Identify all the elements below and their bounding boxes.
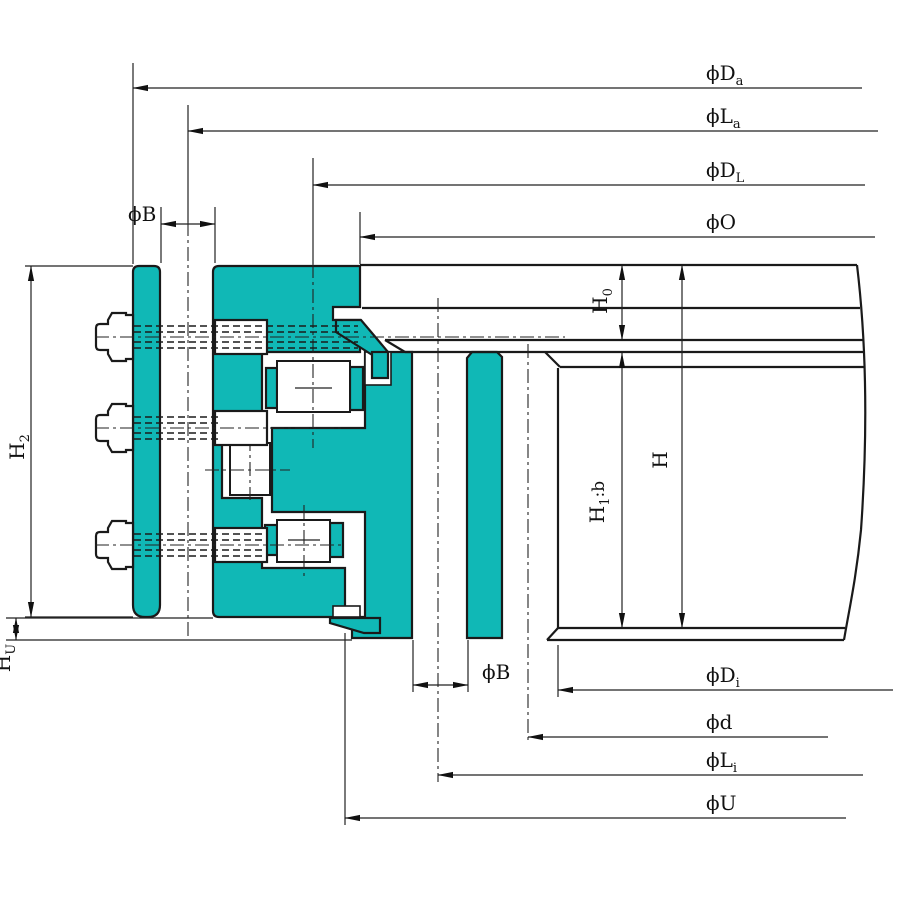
label-h: H [648, 451, 672, 468]
top-raceway-strip-right [350, 367, 363, 410]
label-phi-li: ϕLi [706, 748, 737, 776]
bottom-raceway-strip-right [330, 523, 343, 557]
technical-drawing-canvas: ϕDa ϕLa ϕDL ϕO ϕB H2 HU H0 H1:b H ϕB ϕDi… [0, 0, 900, 900]
top-raceway-strip-left [266, 368, 277, 408]
bottom-seal-groove [333, 606, 360, 617]
label-phi-d: ϕd [706, 710, 733, 734]
label-phi-b-top: ϕB [128, 202, 156, 226]
top-seal-tab [372, 352, 388, 378]
bearing-cross-section-drawing: ϕDa ϕLa ϕDL ϕO ϕB H2 HU H0 H1:b H ϕB ϕDi… [0, 0, 900, 900]
label-phi-u: ϕU [706, 791, 737, 815]
outer-ring-flange [133, 266, 160, 617]
label-phi-o: ϕO [706, 210, 736, 234]
label-phi-di: ϕDi [706, 663, 740, 691]
label-phi-b-bottom: ϕB [482, 660, 510, 684]
inner-ring-right [467, 352, 502, 638]
